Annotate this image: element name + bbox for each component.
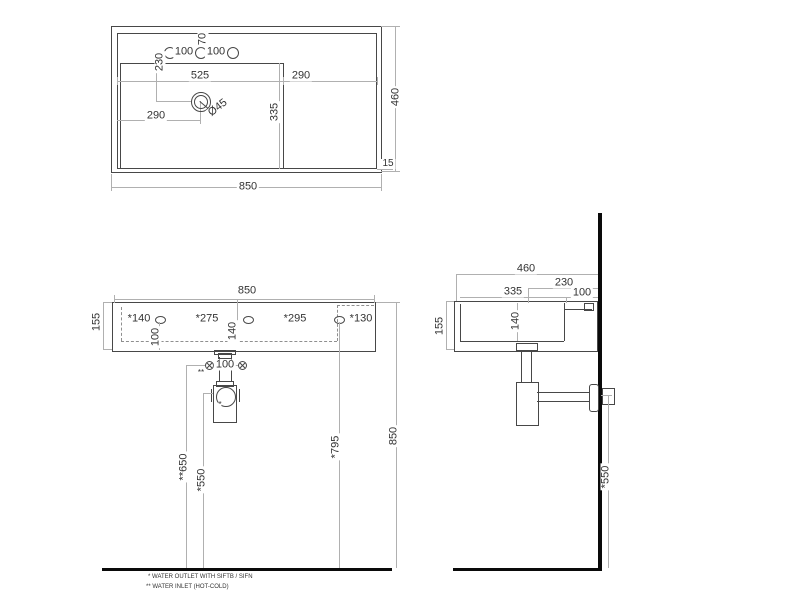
dim-front-height: 155	[92, 311, 103, 333]
dim-right-hole-height: *795	[331, 434, 342, 461]
technical-drawing: 100 100 70 230 525 290 335 290 Ø45 850	[0, 0, 800, 600]
side-bowl-left-inner	[460, 304, 461, 341]
floor-line-side	[453, 568, 601, 571]
dim-deck-width: 290	[290, 71, 312, 82]
dim-hole-spacing-2: *275	[194, 314, 221, 325]
dim-side-height: 155	[435, 315, 446, 337]
dim-line-side-height	[446, 301, 447, 350]
trap-nut-left	[211, 389, 212, 402]
dim-side-bowl-inner: 140	[511, 310, 522, 332]
front-hole-1-icon	[155, 316, 166, 324]
side-shelf-hole	[584, 303, 594, 311]
ext-line-drain-center	[156, 101, 191, 102]
dim-hole-pitch-left: 100	[173, 47, 195, 58]
ext-br	[381, 174, 382, 191]
wall-flange	[589, 384, 599, 412]
dim-overall-width: 850	[237, 182, 259, 193]
dim-drain-from-left: 290	[145, 111, 167, 122]
tick-fr	[374, 295, 375, 303]
dim-outlet-height: *550	[197, 467, 208, 494]
dim-line-front-width	[114, 299, 374, 300]
water-inlet-left-icon	[205, 361, 214, 370]
ext-bl	[111, 174, 112, 191]
dim-line-front-height	[103, 302, 104, 350]
ext-side-460	[456, 274, 457, 301]
floor-line-front	[102, 568, 392, 571]
dim-overall-depth: 460	[391, 86, 402, 108]
ext-side-230	[528, 288, 529, 303]
bowl-top-edge	[120, 63, 283, 64]
ext-inlet	[186, 365, 205, 366]
dim-front-width: 850	[236, 286, 258, 297]
trap-nut-right	[239, 389, 240, 402]
side-drain-fitting	[516, 343, 538, 351]
bowl-profile-left-dashed	[121, 307, 122, 341]
ext-sh1	[446, 301, 454, 302]
tick-fl	[114, 295, 115, 303]
note-water-inlet: ** WATER INLET (HOT-COLD)	[146, 582, 229, 593]
ext-rim	[377, 169, 393, 170]
water-inlet-right-icon	[238, 361, 247, 370]
tick-3	[377, 77, 378, 85]
ext-side-outlet	[601, 395, 612, 396]
dim-side-deck-depth: 100	[571, 288, 593, 299]
dim-rim-height: 850	[389, 425, 400, 447]
ext-sh2	[446, 349, 454, 350]
shelf-profile-dashed	[337, 305, 374, 306]
dim-hole-spacing-3: *295	[282, 314, 309, 325]
ext-outlet	[203, 393, 213, 394]
dim-rim-gap: 15	[380, 159, 395, 169]
inlet-note-ref: **	[198, 369, 204, 377]
dim-drain-setback: 230	[155, 51, 166, 73]
dim-hole-offset: 70	[198, 31, 209, 47]
dim-side-bowl-depth: 335	[502, 287, 524, 298]
dim-bowl-inner-depth: 140	[228, 320, 239, 342]
ext-tr	[381, 26, 400, 27]
dim-side-outlet-height: *550	[601, 464, 612, 491]
dim-line-bowl-deck	[117, 81, 377, 82]
side-waste-pipe-bottom	[537, 401, 589, 402]
ext-fh2	[103, 349, 112, 350]
dim-hole-height: 100	[151, 326, 162, 348]
dim-bowl-width: 525	[189, 71, 211, 82]
side-tailpipe-right	[531, 351, 532, 382]
ext-fh1	[103, 302, 112, 303]
tick-2	[283, 77, 284, 85]
faucet-hole-right-icon	[227, 47, 239, 59]
side-bowl-bottom	[460, 341, 564, 342]
ext-br2	[381, 171, 400, 172]
side-trap-body	[516, 382, 539, 426]
outlet-note-ref: *	[218, 401, 221, 409]
dim-bowl-depth: 335	[270, 101, 281, 123]
tick-1	[117, 77, 118, 85]
dim-inlet-height: **650	[179, 452, 190, 483]
dim-side-depth: 460	[515, 264, 537, 275]
dim-hole-spacing-1: *140	[126, 314, 153, 325]
front-hole-2-icon	[243, 316, 254, 324]
dim-hole-pitch-right: 100	[205, 47, 227, 58]
bowl-left-edge	[120, 63, 121, 168]
dim-hole-spacing-4: *130	[348, 314, 375, 325]
side-waste-pipe-top	[537, 392, 589, 393]
side-tailpipe-left	[521, 351, 522, 382]
dim-inlet-spacing: 100	[214, 360, 236, 371]
